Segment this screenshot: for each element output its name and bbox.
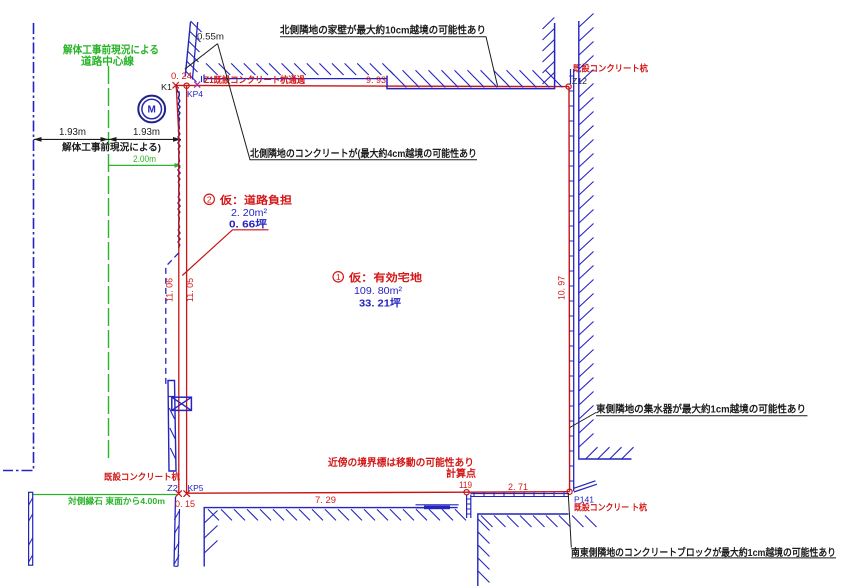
svg-text:KP5: KP5 [188,483,204,493]
svg-text:2.00m: 2.00m [133,154,156,164]
svg-text:北側隣地の家壁が最大約10cm越境の可能性あり: 北側隣地の家壁が最大約10cm越境の可能性あり [280,24,486,37]
svg-text:近傍の境界標は移動の可能性あり: 近傍の境界標は移動の可能性あり [328,456,474,469]
svg-text:2: 2 [207,195,212,205]
svg-text:0. 66坪: 0. 66坪 [229,218,267,231]
svg-text:0. 24: 0. 24 [171,71,192,81]
svg-text:2. 20m²: 2. 20m² [231,208,268,219]
svg-text:Z2: Z2 [167,483,178,493]
svg-text:KP4: KP4 [187,89,203,99]
svg-text:既設コンクリー ト杭: 既設コンクリー ト杭 [574,502,647,513]
svg-text:仮：道路負担: 仮：道路負担 [219,194,293,207]
svg-text:南東側隣地のコンクリートブロックが最大約1cm越境の可能性あ: 南東側隣地のコンクリートブロックが最大約1cm越境の可能性あり [571,546,836,559]
svg-text:1.93m: 1.93m [133,127,160,138]
svg-text:2. 71: 2. 71 [508,482,528,492]
svg-text:M: M [148,105,156,116]
svg-text:東側隣地の集水器が最大約1cm越境の可能性あり: 東側隣地の集水器が最大約1cm越境の可能性あり [596,403,806,416]
svg-text:解体工事前現況による: 解体工事前現況による [62,43,159,56]
svg-text:1.93m: 1.93m [59,127,86,138]
svg-text:解体工事前現況による): 解体工事前現況による) [62,142,161,154]
svg-text:33. 21坪: 33. 21坪 [359,297,401,310]
svg-text:119: 119 [459,480,472,490]
svg-text:0. 15: 0. 15 [175,499,195,509]
svg-text:11. 06: 11. 06 [165,278,175,302]
svg-text:7. 29: 7. 29 [315,495,336,505]
svg-text:11. 05: 11. 05 [185,278,195,302]
svg-text:9. 93: 9. 93 [366,75,386,85]
svg-text:K1: K1 [161,82,172,92]
svg-text:109. 80m²: 109. 80m² [354,286,403,297]
svg-text:道路中心線: 道路中心線 [81,55,135,68]
svg-text:Z1既設コンクリート杭通過: Z1既設コンクリート杭通過 [204,74,306,85]
svg-text:既設コンクリート杭: 既設コンクリート杭 [104,471,180,482]
svg-text:1: 1 [336,272,341,282]
svg-text:仮：有効宅地: 仮：有効宅地 [348,271,423,284]
svg-text:対側縁石 東面から4.00m: 対側縁石 東面から4.00m [67,496,165,506]
svg-text:0.55m: 0.55m [197,32,224,43]
svg-text:10. 97: 10. 97 [556,276,566,300]
svg-text:北側隣地のコンクリートが(最大約4cm越境の可能性あり: 北側隣地のコンクリートが(最大約4cm越境の可能性あり [250,147,477,160]
svg-text:計算点: 計算点 [446,467,476,480]
